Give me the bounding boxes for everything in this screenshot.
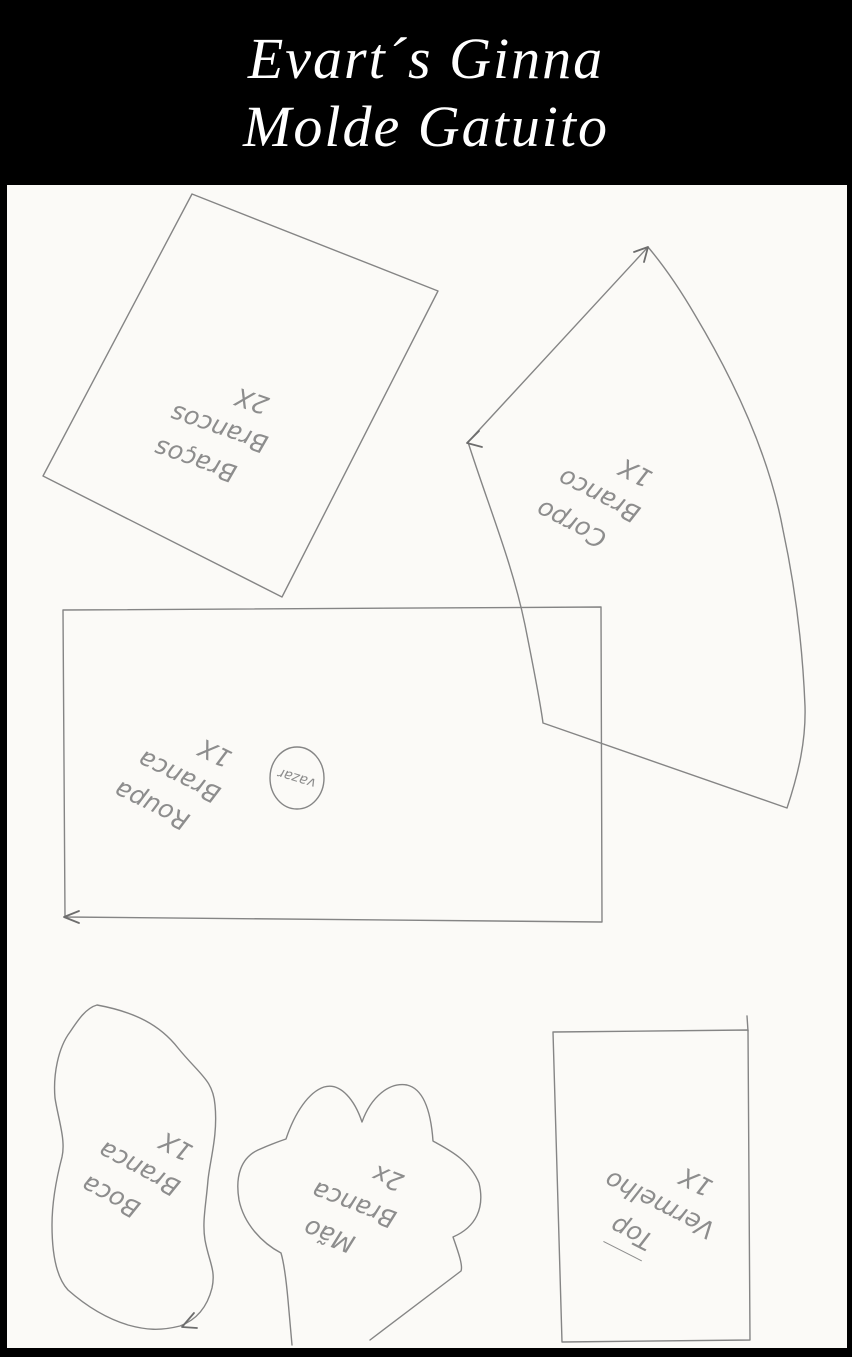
scanned-pattern-page: Evart´s Ginna Molde Gatuito Braços Branc… bbox=[0, 0, 852, 1357]
body-piece-outline bbox=[468, 247, 805, 808]
top-piece-overshoot-line bbox=[747, 1016, 748, 1031]
